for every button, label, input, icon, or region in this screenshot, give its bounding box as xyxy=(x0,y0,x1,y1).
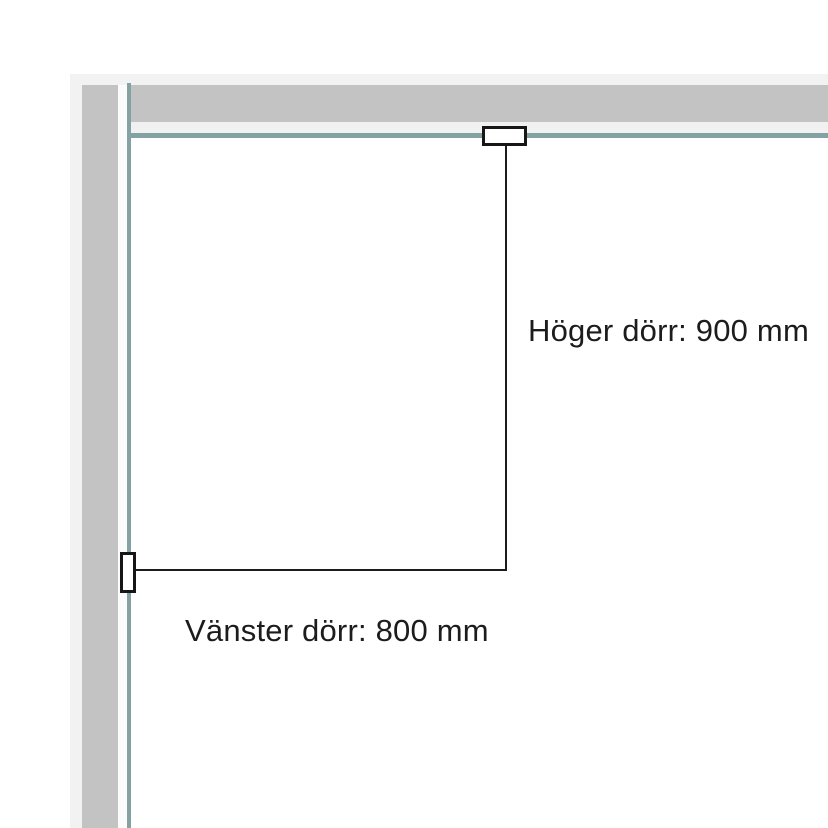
left-wall-inner-edge-line xyxy=(127,83,131,828)
right-door-dimension-line xyxy=(505,146,507,571)
left-door-dimension-line xyxy=(136,569,507,571)
left-door-handle-marker[interactable] xyxy=(120,552,136,593)
right-door-handle-marker[interactable] xyxy=(482,126,527,146)
left-wall-outer-band xyxy=(70,74,82,828)
top-wall-inner-edge-line xyxy=(127,133,828,138)
right-door-dimension-label: Höger dörr: 900 mm xyxy=(528,313,809,349)
left-door-dimension-label: Vänster dörr: 800 mm xyxy=(185,613,489,649)
floor-plan-canvas: Höger dörr: 900 mm Vänster dörr: 800 mm xyxy=(0,0,828,828)
left-wall-inner-gap xyxy=(118,85,127,828)
top-wall-inner-gap xyxy=(127,122,828,133)
left-wall xyxy=(82,85,118,828)
top-wall xyxy=(127,85,828,122)
